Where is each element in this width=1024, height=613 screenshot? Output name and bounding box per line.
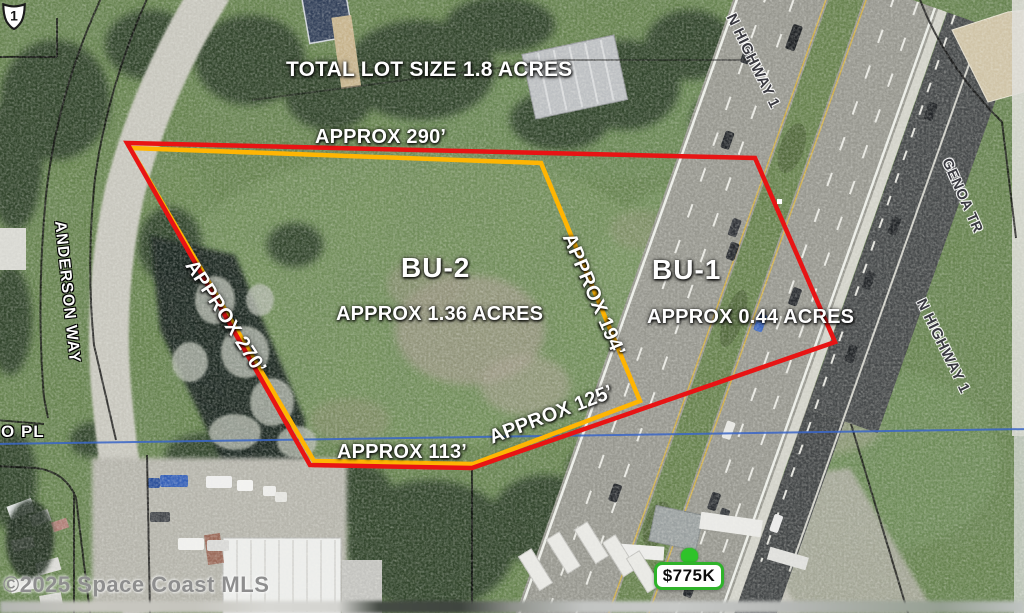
price-pin-dot-icon — [681, 548, 698, 563]
aerial-listing-photo: TOTAL LOT SIZE 1.8 ACRES APPROX 290’ BU-… — [0, 0, 1024, 613]
price-pin[interactable]: $775K — [650, 548, 728, 590]
price-label: $775K — [654, 562, 725, 590]
aerial-map — [0, 0, 1024, 613]
boundary-vertex-dot — [777, 199, 782, 204]
photo-grain — [0, 0, 1024, 613]
